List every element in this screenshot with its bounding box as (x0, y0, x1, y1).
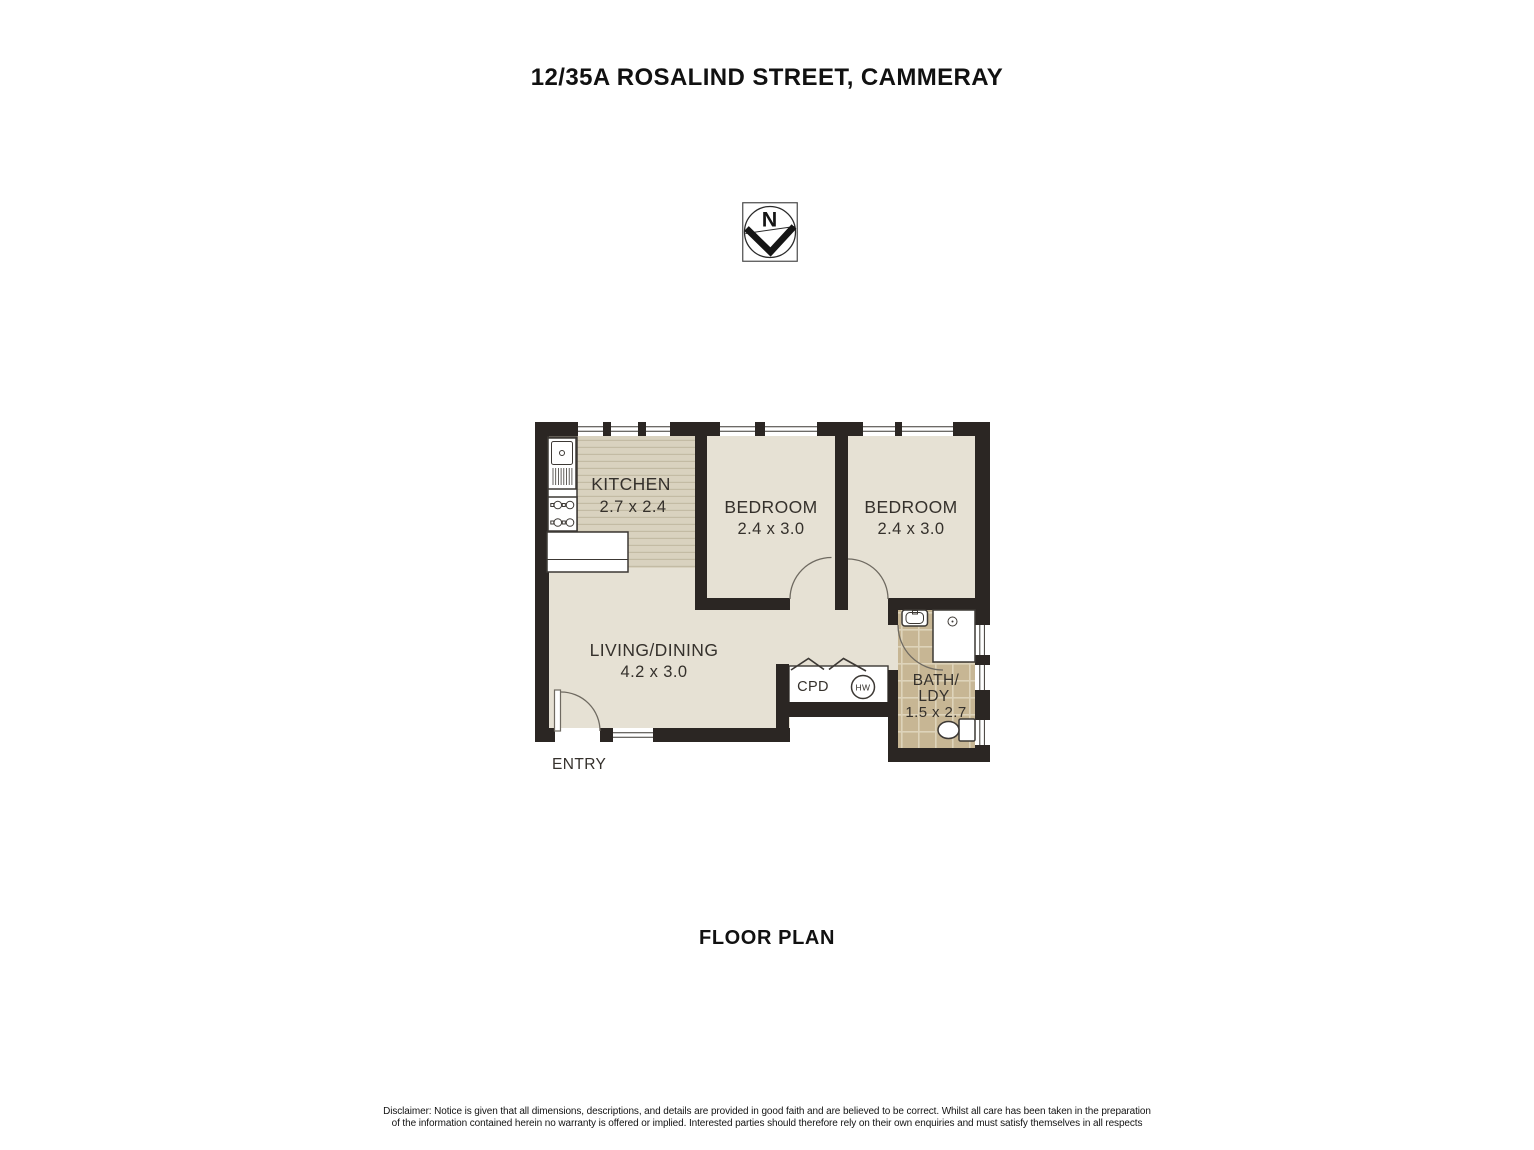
north-compass-icon: N (742, 202, 798, 262)
bedroom1-label: BEDROOM (724, 497, 817, 517)
laundry-label: LDY (918, 688, 949, 705)
living-dining-label: LIVING/DINING (590, 640, 719, 660)
wall-between-bedrooms (835, 436, 848, 610)
toilet-cistern (959, 719, 975, 741)
exterior-notch (790, 717, 888, 762)
wall-cupboard-bottom (776, 702, 897, 717)
wall-hall-left (695, 598, 790, 610)
cupboard-label: CPD (797, 679, 829, 695)
bedroom2-dims: 2.4 x 3.0 (878, 520, 945, 538)
bedroom2-window (863, 422, 953, 436)
entry-door-leaf (555, 690, 561, 731)
bath-dims: 1.5 x 2.7 (905, 704, 966, 721)
floorplan-page: 12/35A ROSALIND STREET, CAMMERAY N (0, 0, 1534, 1150)
wall-bath-bottom (888, 748, 990, 762)
bedroom1-window (720, 422, 817, 436)
shower (933, 610, 975, 662)
kitchen-window (578, 422, 670, 436)
plan-caption: FLOOR PLAN (0, 927, 1534, 950)
kitchen-counter (547, 532, 628, 572)
disclaimer-line-2: of the information contained herein no w… (0, 1118, 1534, 1130)
toilet-bowl (938, 722, 959, 739)
wall-bath-top (888, 598, 990, 610)
living-window (613, 728, 653, 742)
bedroom2-label: BEDROOM (864, 497, 957, 517)
shower-rose-dot (952, 621, 954, 623)
compass-north-label: N (762, 208, 778, 232)
disclaimer: Disclaimer: Notice is given that all dim… (0, 1106, 1534, 1129)
hot-water-label: HW (856, 683, 871, 693)
page-title: 12/35A ROSALIND STREET, CAMMERAY (0, 64, 1534, 92)
living-dining-dims: 4.2 x 3.0 (621, 663, 688, 681)
bath-label: BATH/ (913, 672, 960, 689)
bathroom-windows (975, 625, 990, 745)
kitchen-label: KITCHEN (591, 474, 671, 494)
disclaimer-line-1: Disclaimer: Notice is given that all dim… (0, 1106, 1534, 1118)
entry-opening (555, 728, 600, 742)
entry-label: ENTRY (552, 756, 606, 773)
wall-right (975, 422, 990, 762)
kitchen-dims: 2.7 x 2.4 (600, 498, 667, 516)
floor-plan-drawing: HW KITCHEN 2.7 x 2.4 BEDROOM 2.4 x 3.0 B… (530, 415, 995, 775)
wall-left (535, 422, 549, 742)
bedroom1-dims: 2.4 x 3.0 (738, 520, 805, 538)
wall-kitchen-bedroom1 (695, 436, 707, 610)
wall-bath-left-upper (888, 598, 898, 625)
